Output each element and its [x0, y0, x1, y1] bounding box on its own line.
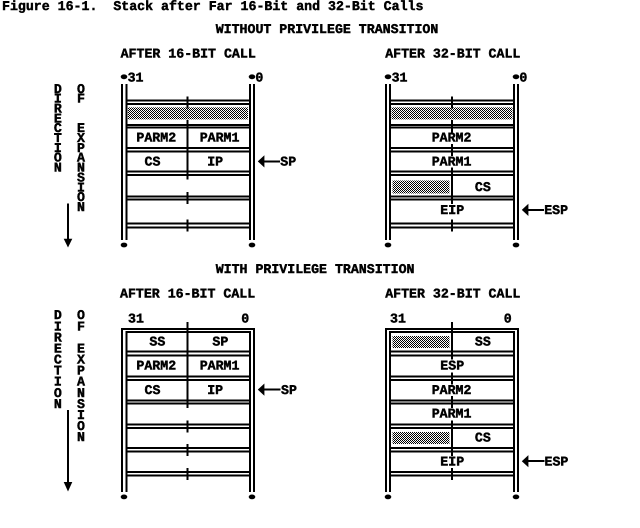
svg-text:PARM1: PARM1 — [200, 359, 240, 374]
svg-text:0: 0 — [241, 311, 249, 326]
svg-text:IP: IP — [207, 383, 223, 398]
svg-text:CS: CS — [475, 180, 491, 195]
svg-text:PARM2: PARM2 — [432, 383, 472, 398]
svg-text:31: 31 — [392, 71, 408, 86]
svg-text:WITH PRIVILEGE TRANSITION: WITH PRIVILEGE TRANSITION — [216, 262, 415, 277]
svg-text:PARM1: PARM1 — [432, 406, 472, 421]
svg-text:WITHOUT PRIVILEGE TRANSITION: WITHOUT PRIVILEGE TRANSITION — [216, 22, 439, 37]
svg-text:PARM2: PARM2 — [432, 130, 472, 145]
svg-text:EIP: EIP — [440, 454, 464, 469]
svg-text:0: 0 — [255, 71, 263, 86]
svg-text:F: F — [77, 92, 85, 107]
svg-text:SP: SP — [212, 335, 228, 350]
svg-text:31: 31 — [128, 311, 144, 326]
svg-text:31: 31 — [128, 71, 144, 86]
svg-text:CS: CS — [145, 383, 161, 398]
svg-text:EIP: EIP — [440, 203, 464, 218]
svg-text:AFTER 16-BIT CALL: AFTER 16-BIT CALL — [120, 287, 255, 302]
svg-text:N: N — [77, 200, 85, 215]
svg-text:PARM1: PARM1 — [200, 130, 240, 145]
svg-text:SS: SS — [149, 335, 165, 350]
svg-text:N: N — [54, 161, 62, 176]
svg-text:31: 31 — [390, 311, 406, 326]
svg-text:CS: CS — [475, 430, 491, 445]
svg-text:0: 0 — [519, 71, 527, 86]
svg-text:PARM1: PARM1 — [432, 155, 472, 170]
svg-text:N: N — [54, 397, 62, 412]
svg-text:CS: CS — [145, 155, 161, 170]
svg-text:ESP: ESP — [440, 359, 464, 374]
svg-text:N: N — [77, 430, 85, 445]
svg-text:ESP: ESP — [545, 454, 569, 469]
svg-text:AFTER 32-BIT CALL: AFTER 32-BIT CALL — [385, 287, 520, 302]
svg-text:SP: SP — [280, 155, 296, 170]
svg-text:PARM2: PARM2 — [136, 359, 176, 374]
svg-text:Figure 16-1. Stack after Far: Figure 16-1. Stack after Far 16-Bit and … — [2, 0, 423, 14]
svg-text:F: F — [77, 319, 85, 334]
svg-text:SP: SP — [281, 383, 297, 398]
svg-text:0: 0 — [504, 311, 512, 326]
svg-text:PARM2: PARM2 — [136, 130, 176, 145]
svg-text:AFTER 32-BIT CALL: AFTER 32-BIT CALL — [385, 47, 520, 62]
svg-text:IP: IP — [207, 155, 223, 170]
svg-text:SS: SS — [475, 335, 491, 350]
svg-text:AFTER 16-BIT CALL: AFTER 16-BIT CALL — [121, 47, 256, 62]
svg-text:ESP: ESP — [544, 203, 568, 218]
